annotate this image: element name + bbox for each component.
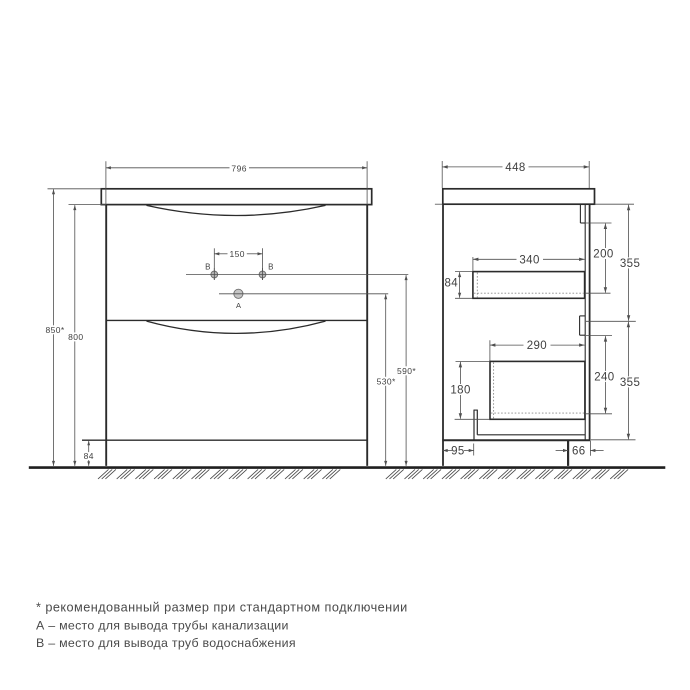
svg-text:* рекомендованный размер при с: * рекомендованный размер при стандартном… [36, 601, 408, 615]
svg-text:В – место для вывода труб водо: В – место для вывода труб водоснабжения [36, 636, 296, 650]
svg-text:200: 200 [593, 249, 613, 261]
svg-text:180: 180 [450, 385, 470, 397]
svg-text:800: 800 [68, 332, 83, 342]
svg-text:240: 240 [594, 371, 614, 383]
svg-text:290: 290 [527, 340, 547, 352]
svg-text:84: 84 [445, 277, 459, 289]
svg-text:150: 150 [230, 249, 245, 259]
svg-text:66: 66 [572, 446, 586, 458]
svg-text:850*: 850* [45, 325, 64, 335]
svg-text:B: B [268, 263, 274, 272]
svg-text:448: 448 [505, 162, 525, 174]
svg-text:340: 340 [519, 254, 539, 266]
svg-text:А – место для вывода трубы кан: А – место для вывода трубы канализации [36, 618, 289, 632]
svg-text:B: B [205, 263, 211, 272]
svg-text:590*: 590* [397, 366, 416, 376]
svg-text:84: 84 [84, 451, 94, 461]
svg-text:796: 796 [231, 163, 247, 173]
svg-text:355: 355 [620, 258, 640, 270]
svg-text:530*: 530* [377, 376, 396, 386]
svg-text:95: 95 [451, 446, 465, 458]
svg-text:355: 355 [620, 377, 640, 389]
svg-text:A: A [236, 301, 241, 310]
